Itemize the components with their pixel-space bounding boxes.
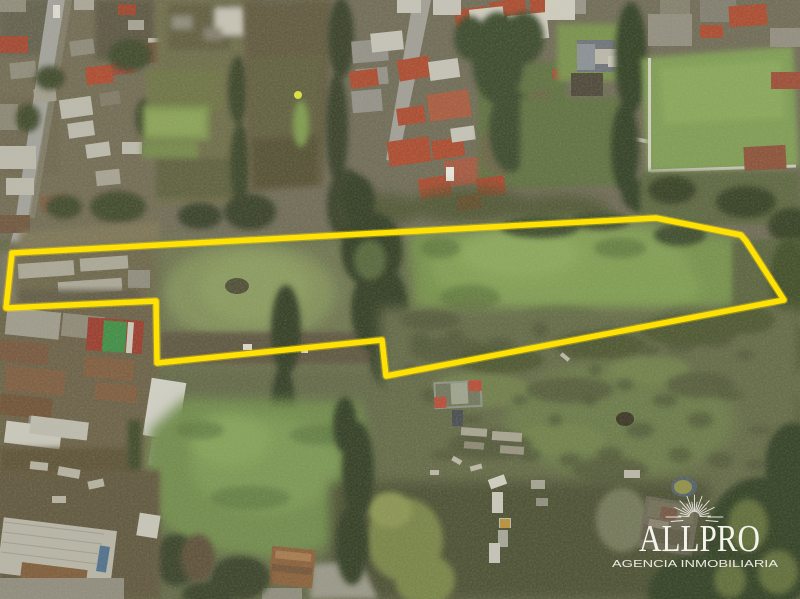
- svg-text:ALLPRO: ALLPRO: [639, 518, 760, 560]
- svg-text:AGENCIA INMOBILIARIA: AGENCIA INMOBILIARIA: [612, 558, 778, 570]
